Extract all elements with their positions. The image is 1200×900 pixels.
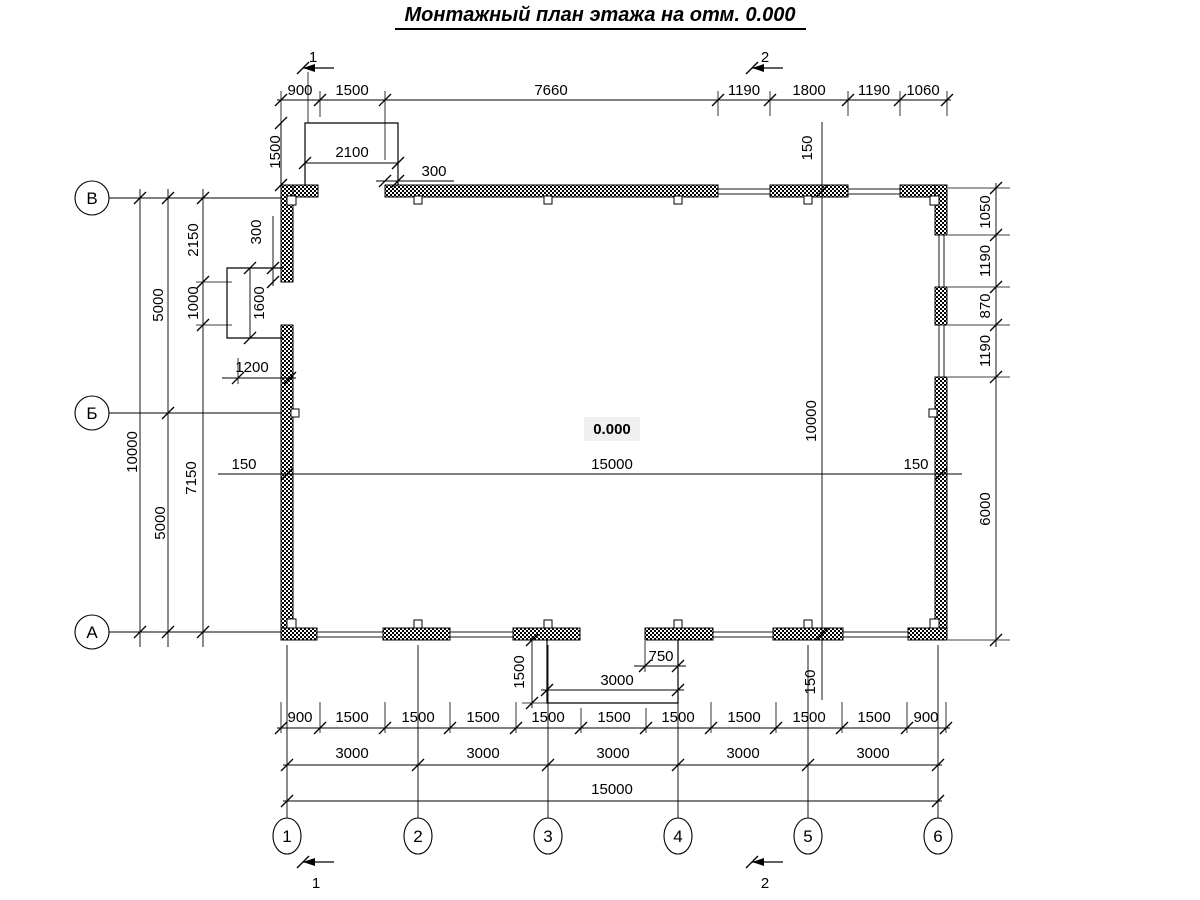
dim-right-1190b: 1190: [977, 335, 994, 367]
axis-label-col-4: 4: [673, 827, 682, 846]
dim-right-1190a: 1190: [977, 245, 994, 277]
dim-left-10000: 10000: [124, 431, 141, 473]
dim-top-900: 900: [287, 82, 312, 99]
dim-bf-0: 900: [287, 709, 312, 726]
dim-bm-4: 3000: [856, 745, 889, 762]
section-label-1-top: 1: [309, 49, 317, 66]
dim-bf-2: 1500: [401, 709, 434, 726]
dims-interior: 150 15000 150 150 10000 150 0.000: [218, 122, 962, 700]
dim-top-7660: 7660: [534, 82, 567, 99]
dim-bm-2: 3000: [596, 745, 629, 762]
section-marker-2-bottom: 2: [746, 856, 783, 892]
section-marker-1-bottom: 1: [297, 856, 334, 892]
walls: [281, 185, 947, 640]
dim-int-15000: 15000: [591, 456, 633, 473]
dim-top-porch-2100: 2100: [335, 144, 368, 161]
dim-int-150-top: 150: [799, 135, 816, 160]
dim-top-1060: 1060: [906, 82, 939, 99]
dim-int-10000: 10000: [803, 400, 820, 442]
dim-top-1800: 1800: [792, 82, 825, 99]
dims-bottom-porch: 1500 750 3000: [511, 634, 686, 709]
dim-bf-6: 1500: [661, 709, 694, 726]
dim-bf-4: 1500: [531, 709, 564, 726]
dim-bporch-750: 750: [648, 648, 673, 665]
dim-right-1050: 1050: [977, 195, 994, 228]
dim-left-5000-lower: 5000: [152, 506, 169, 539]
dim-bf-10: 900: [913, 709, 938, 726]
dim-bm-3: 3000: [726, 745, 759, 762]
section-marker-2-top: 2: [746, 49, 783, 74]
dim-bottom-15000: 15000: [591, 781, 633, 798]
dim-bf-8: 1500: [792, 709, 825, 726]
axis-label-col-6: 6: [933, 827, 942, 846]
dim-bf-3: 1500: [466, 709, 499, 726]
anchor-plates: [287, 196, 939, 628]
floor-plan-sheet: Монтажный план этажа на отм. 0.000: [0, 0, 1200, 900]
dim-bf-1: 1500: [335, 709, 368, 726]
axis-label-row-b: Б: [86, 404, 97, 423]
dim-bf-9: 1500: [857, 709, 890, 726]
dim-int-150-bottom: 150: [802, 669, 819, 694]
dim-right-870: 870: [977, 293, 994, 318]
floor-plan-canvas: В Б А 1 2 3 4 5 6: [0, 0, 1200, 900]
dims-left: 10000 5000 5000 2150 1000 7150 1600 300 …: [124, 189, 296, 647]
dim-top-porch-1500: 1500: [267, 135, 284, 168]
dim-int-150-left: 150: [231, 456, 256, 473]
axis-label-row-a: А: [86, 623, 98, 642]
axis-label-row-v: В: [86, 189, 97, 208]
dim-int-150-right: 150: [903, 456, 928, 473]
dim-top-1500: 1500: [335, 82, 368, 99]
dim-left-2150: 2150: [185, 223, 202, 256]
windows: [317, 189, 944, 637]
dims-right: 1050 1190 870 1190 6000: [948, 182, 1010, 647]
dim-top-porch-300: 300: [421, 163, 446, 180]
dim-left-porch-300: 300: [248, 219, 265, 244]
dim-left-porch-1600: 1600: [251, 286, 268, 319]
section-label-1-bottom: 1: [312, 875, 320, 892]
dim-bf-7: 1500: [727, 709, 760, 726]
section-label-2-top: 2: [761, 49, 769, 66]
dim-left-porch-1200: 1200: [235, 359, 268, 376]
dims-bottom: 900 1500 1500 1500 1500 1500 1500 1500 1…: [275, 702, 952, 807]
section-label-2-bottom: 2: [761, 875, 769, 892]
dim-bporch-1500: 1500: [511, 655, 528, 688]
dim-bm-0: 3000: [335, 745, 368, 762]
dim-bf-5: 1500: [597, 709, 630, 726]
dim-left-5000-upper: 5000: [150, 288, 167, 321]
dim-left-1000: 1000: [185, 286, 202, 319]
axis-label-col-2: 2: [413, 827, 422, 846]
dim-bporch-3000: 3000: [600, 672, 633, 689]
dim-top-1190a: 1190: [728, 82, 760, 99]
axis-label-col-1: 1: [282, 827, 291, 846]
section-markers: 1 2 1 2: [297, 49, 783, 892]
level-mark: 0.000: [593, 421, 631, 438]
dim-top-1190b: 1190: [858, 82, 890, 99]
axis-label-col-3: 3: [543, 827, 552, 846]
dim-left-7150: 7150: [183, 461, 200, 494]
dim-bm-1: 3000: [466, 745, 499, 762]
dim-right-6000: 6000: [977, 492, 994, 525]
dims-top: 900 1500 7660 1190 1800 1190 1060 2100 1…: [267, 72, 953, 191]
axis-label-col-5: 5: [803, 827, 812, 846]
section-marker-1-top: 1: [297, 49, 334, 74]
